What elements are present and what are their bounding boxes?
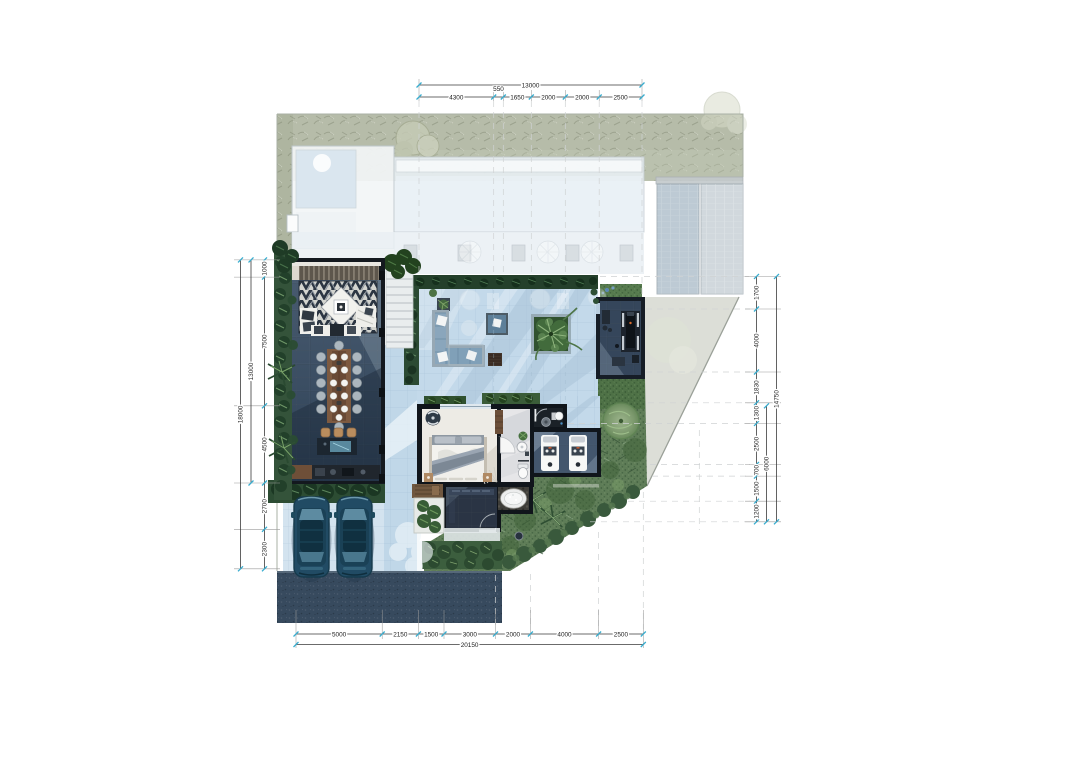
svg-text:2500: 2500 <box>614 631 629 638</box>
svg-text:6000: 6000 <box>764 456 771 471</box>
svg-text:2500: 2500 <box>613 94 628 101</box>
svg-text:7500: 7500 <box>262 334 269 349</box>
svg-text:700: 700 <box>754 464 761 475</box>
svg-text:550: 550 <box>493 86 504 93</box>
svg-text:2000: 2000 <box>506 631 521 638</box>
svg-text:4300: 4300 <box>449 94 464 101</box>
svg-text:13000: 13000 <box>522 82 540 89</box>
svg-text:1830: 1830 <box>754 380 761 395</box>
svg-text:1500: 1500 <box>754 481 761 496</box>
svg-text:4500: 4500 <box>262 437 269 452</box>
svg-text:2150: 2150 <box>393 631 408 638</box>
svg-text:2500: 2500 <box>754 436 761 451</box>
svg-text:2700: 2700 <box>262 499 269 514</box>
svg-text:1650: 1650 <box>510 94 525 101</box>
svg-text:4000: 4000 <box>754 333 761 348</box>
svg-text:1000: 1000 <box>262 261 269 276</box>
svg-text:18000: 18000 <box>238 405 245 423</box>
svg-text:2000: 2000 <box>541 94 556 101</box>
svg-text:14750: 14750 <box>774 390 781 408</box>
svg-text:5000: 5000 <box>332 631 347 638</box>
svg-text:2000: 2000 <box>575 94 590 101</box>
svg-text:4000: 4000 <box>557 631 572 638</box>
svg-text:20150: 20150 <box>461 642 479 649</box>
svg-text:2300: 2300 <box>262 542 269 557</box>
svg-text:3000: 3000 <box>463 631 478 638</box>
svg-text:1500: 1500 <box>424 631 439 638</box>
svg-text:13000: 13000 <box>248 362 255 380</box>
svg-text:1700: 1700 <box>754 285 761 300</box>
svg-text:1200: 1200 <box>754 504 761 519</box>
svg-text:1300: 1300 <box>754 406 761 421</box>
